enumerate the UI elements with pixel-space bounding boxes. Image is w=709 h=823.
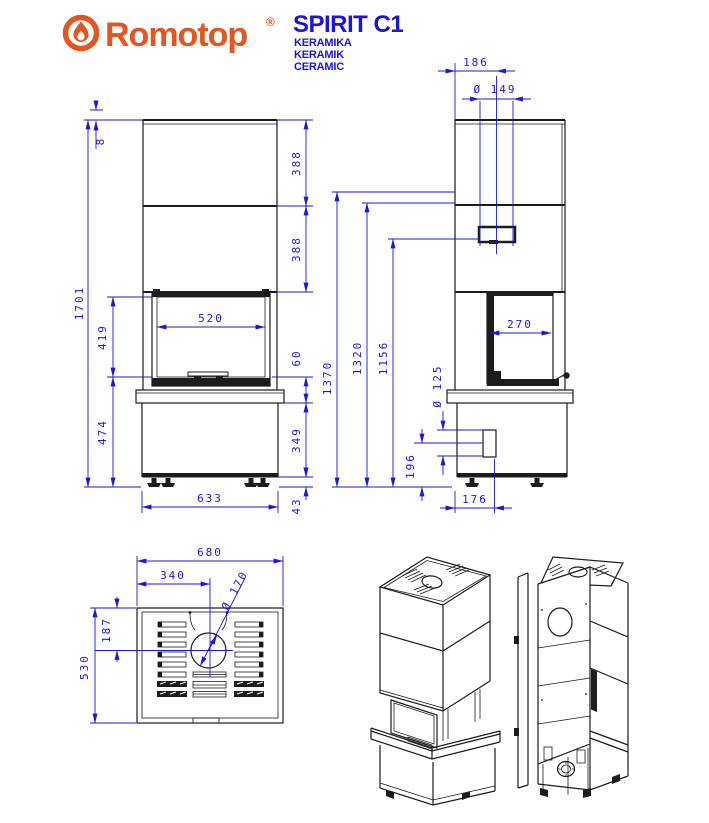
dim-front-upper-panel: 388 — [290, 150, 303, 176]
dim-top-flue-hole-diameter: Ø 170 — [219, 568, 251, 612]
registered-mark: ® — [266, 15, 275, 29]
iso-rear-air-inlet — [558, 762, 575, 777]
technical-drawing-sheet: Romotop ® SPIRIT C1 KERAMIKA KERAMIK CER… — [0, 0, 709, 823]
brand-name: Romotop — [105, 16, 247, 54]
dim-side-air-inlet-diameter: Ø 125 — [431, 364, 444, 407]
side-glass — [487, 292, 559, 386]
air-inlet-port — [483, 430, 496, 457]
subtitle-ceramic: CERAMIC — [294, 61, 344, 73]
dim-front-lower-panel: 388 — [290, 236, 303, 262]
dim-front-base-width: 633 — [197, 492, 223, 505]
dim-side-air-inlet-offset: 176 — [462, 493, 488, 506]
iso-front-view — [371, 557, 500, 805]
dim-top-width: 680 — [197, 546, 223, 559]
dim-side-air-inlet-height: 196 — [404, 453, 417, 479]
front-view: 8 1701 419 474 388 388 520 60 349 — [73, 100, 313, 515]
top-view: 680 340 Ø 170 187 530 — [78, 546, 283, 723]
dim-front-glass-height: 419 — [96, 324, 109, 350]
dim-front-glass-width: 520 — [198, 312, 224, 325]
side-view-outline — [447, 120, 573, 487]
subtitle-keramika: KERAMIKA — [294, 37, 352, 49]
side-feet — [465, 478, 544, 487]
brand-logo: Romotop ® — [66, 15, 276, 54]
stove-technical-drawing: Romotop ® SPIRIT C1 KERAMIKA KERAMIK CER… — [0, 0, 709, 823]
model-title: SPIRIT C1 — [293, 11, 403, 38]
side-view: 186 Ø 149 1370 1320 1156 270 Ø 125 196 — [321, 56, 573, 513]
dim-front-pedestal-height: 474 — [96, 419, 109, 445]
side-view-dimensions: 186 Ø 149 1370 1320 1156 270 Ø 125 196 — [321, 56, 551, 513]
flame-icon — [66, 18, 97, 49]
dim-side-glass-width: 270 — [507, 318, 533, 331]
rear-flue-collar — [479, 227, 515, 244]
dim-front-door-to-shelf: 60 — [290, 349, 303, 366]
dim-side-flue-offset: 186 — [463, 56, 489, 69]
dim-top-flue-center-x: 340 — [160, 569, 186, 582]
dim-side-flue-diameter: Ø 149 — [473, 83, 516, 96]
title-block: SPIRIT C1 KERAMIKA KERAMIK CERAMIC — [293, 11, 403, 73]
dim-front-top-plate: 8 — [94, 137, 107, 146]
dim-side-height-rear-outlet: 1156 — [377, 341, 390, 376]
front-view-outline — [136, 120, 284, 487]
dim-side-height-total: 1370 — [321, 361, 334, 396]
dim-top-depth: 530 — [78, 654, 91, 680]
dim-front-overall-height: 1701 — [73, 286, 86, 321]
subtitle-keramik: KERAMIK — [294, 49, 344, 61]
dim-front-base-height: 349 — [290, 427, 303, 453]
dim-side-height-flue-center: 1320 — [351, 341, 364, 376]
dim-top-flue-center-y: 187 — [100, 617, 113, 643]
dim-front-feet-height: 43 — [290, 497, 303, 514]
side-door-handle — [553, 372, 570, 381]
iso-rear-view — [514, 557, 628, 798]
adjustable-feet — [147, 478, 270, 487]
